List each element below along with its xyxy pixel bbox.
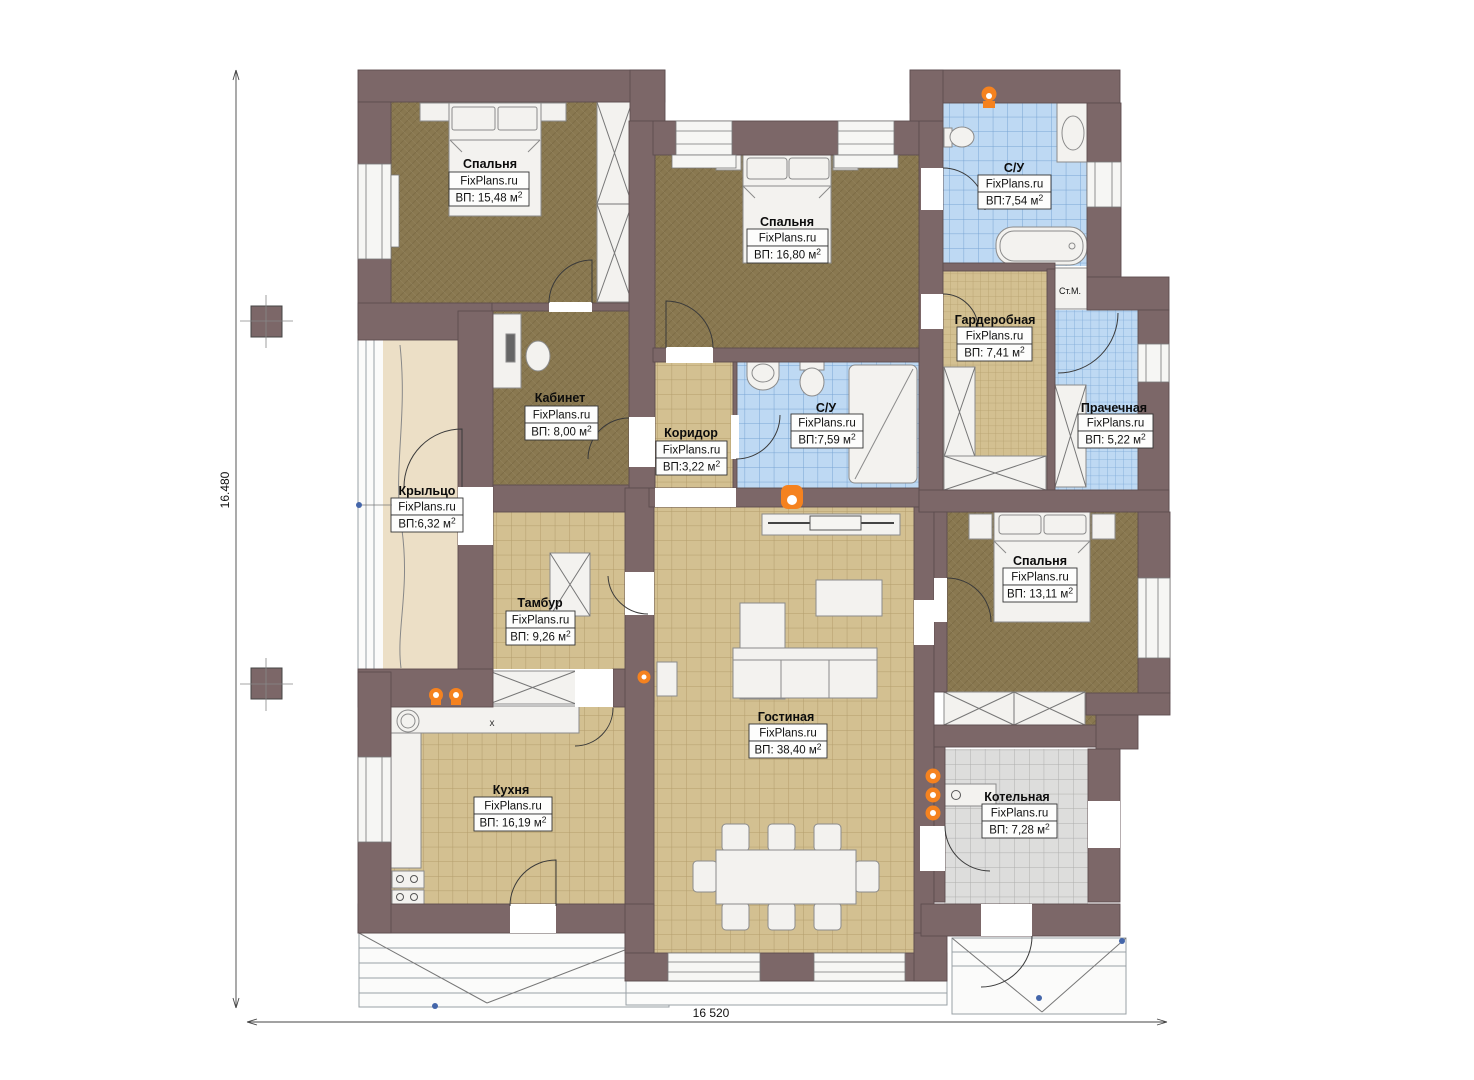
svg-text:Прачечная: Прачечная	[1081, 401, 1147, 415]
svg-text:С/У: С/У	[816, 401, 837, 415]
svg-text:FixPlans.ru: FixPlans.ru	[398, 502, 456, 514]
svg-text:FixPlans.ru: FixPlans.ru	[512, 615, 570, 627]
svg-text:Крыльцо: Крыльцо	[399, 484, 456, 498]
svg-text:Спальня: Спальня	[1013, 554, 1067, 568]
svg-text:ВП:6,32 м2: ВП:6,32 м2	[398, 516, 456, 531]
svg-text:С/У: С/У	[1004, 161, 1025, 175]
svg-text:Кабинет: Кабинет	[535, 391, 586, 405]
svg-text:FixPlans.ru: FixPlans.ru	[966, 331, 1024, 343]
svg-text:FixPlans.ru: FixPlans.ru	[798, 418, 856, 430]
svg-text:ВП: 7,41 м2: ВП: 7,41 м2	[964, 345, 1025, 360]
svg-text:Гардеробная: Гардеробная	[955, 313, 1036, 327]
svg-text:FixPlans.ru: FixPlans.ru	[460, 176, 518, 188]
svg-text:ВП: 16,80 м2: ВП: 16,80 м2	[754, 247, 821, 262]
svg-text:ВП: 38,40 м2: ВП: 38,40 м2	[755, 742, 822, 757]
svg-text:FixPlans.ru: FixPlans.ru	[986, 179, 1044, 191]
svg-text:ВП:3,22 м2: ВП:3,22 м2	[663, 459, 721, 474]
svg-text:FixPlans.ru: FixPlans.ru	[991, 808, 1049, 820]
svg-text:ВП: 9,26 м2: ВП: 9,26 м2	[510, 629, 571, 644]
svg-text:FixPlans.ru: FixPlans.ru	[759, 728, 817, 740]
svg-text:Гостиная: Гостиная	[758, 710, 815, 724]
svg-text:Тамбур: Тамбур	[517, 596, 563, 610]
svg-text:ВП: 8,00 м2: ВП: 8,00 м2	[531, 424, 592, 439]
svg-text:ВП: 5,22 м2: ВП: 5,22 м2	[1085, 432, 1146, 447]
svg-text:FixPlans.ru: FixPlans.ru	[484, 801, 542, 813]
svg-text:Кухня: Кухня	[493, 783, 530, 797]
svg-text:16.480: 16.480	[218, 471, 232, 508]
svg-text:Коридор: Коридор	[664, 426, 718, 440]
svg-text:FixPlans.ru: FixPlans.ru	[1087, 418, 1145, 430]
svg-text:ВП: 15,48 м2: ВП: 15,48 м2	[456, 190, 523, 205]
svg-text:Спальня: Спальня	[760, 215, 814, 229]
svg-text:ВП: 13,11 м2: ВП: 13,11 м2	[1007, 586, 1073, 601]
svg-text:FixPlans.ru: FixPlans.ru	[1011, 572, 1069, 584]
svg-text:FixPlans.ru: FixPlans.ru	[663, 445, 721, 457]
svg-text:x: x	[490, 718, 495, 729]
svg-text:ВП: 7,28 м2: ВП: 7,28 м2	[989, 822, 1050, 837]
svg-text:Спальня: Спальня	[463, 157, 517, 171]
svg-text:Котельная: Котельная	[984, 790, 1049, 804]
svg-text:16 520: 16 520	[693, 1006, 730, 1020]
svg-text:ВП:7,59 м2: ВП:7,59 м2	[798, 432, 856, 447]
svg-text:ВП: 16,19 м2: ВП: 16,19 м2	[480, 815, 547, 830]
svg-text:FixPlans.ru: FixPlans.ru	[759, 233, 817, 245]
svg-text:FixPlans.ru: FixPlans.ru	[533, 410, 591, 422]
svg-text:ВП:7,54 м2: ВП:7,54 м2	[986, 193, 1044, 208]
svg-text:Ст.М.: Ст.М.	[1059, 286, 1081, 296]
